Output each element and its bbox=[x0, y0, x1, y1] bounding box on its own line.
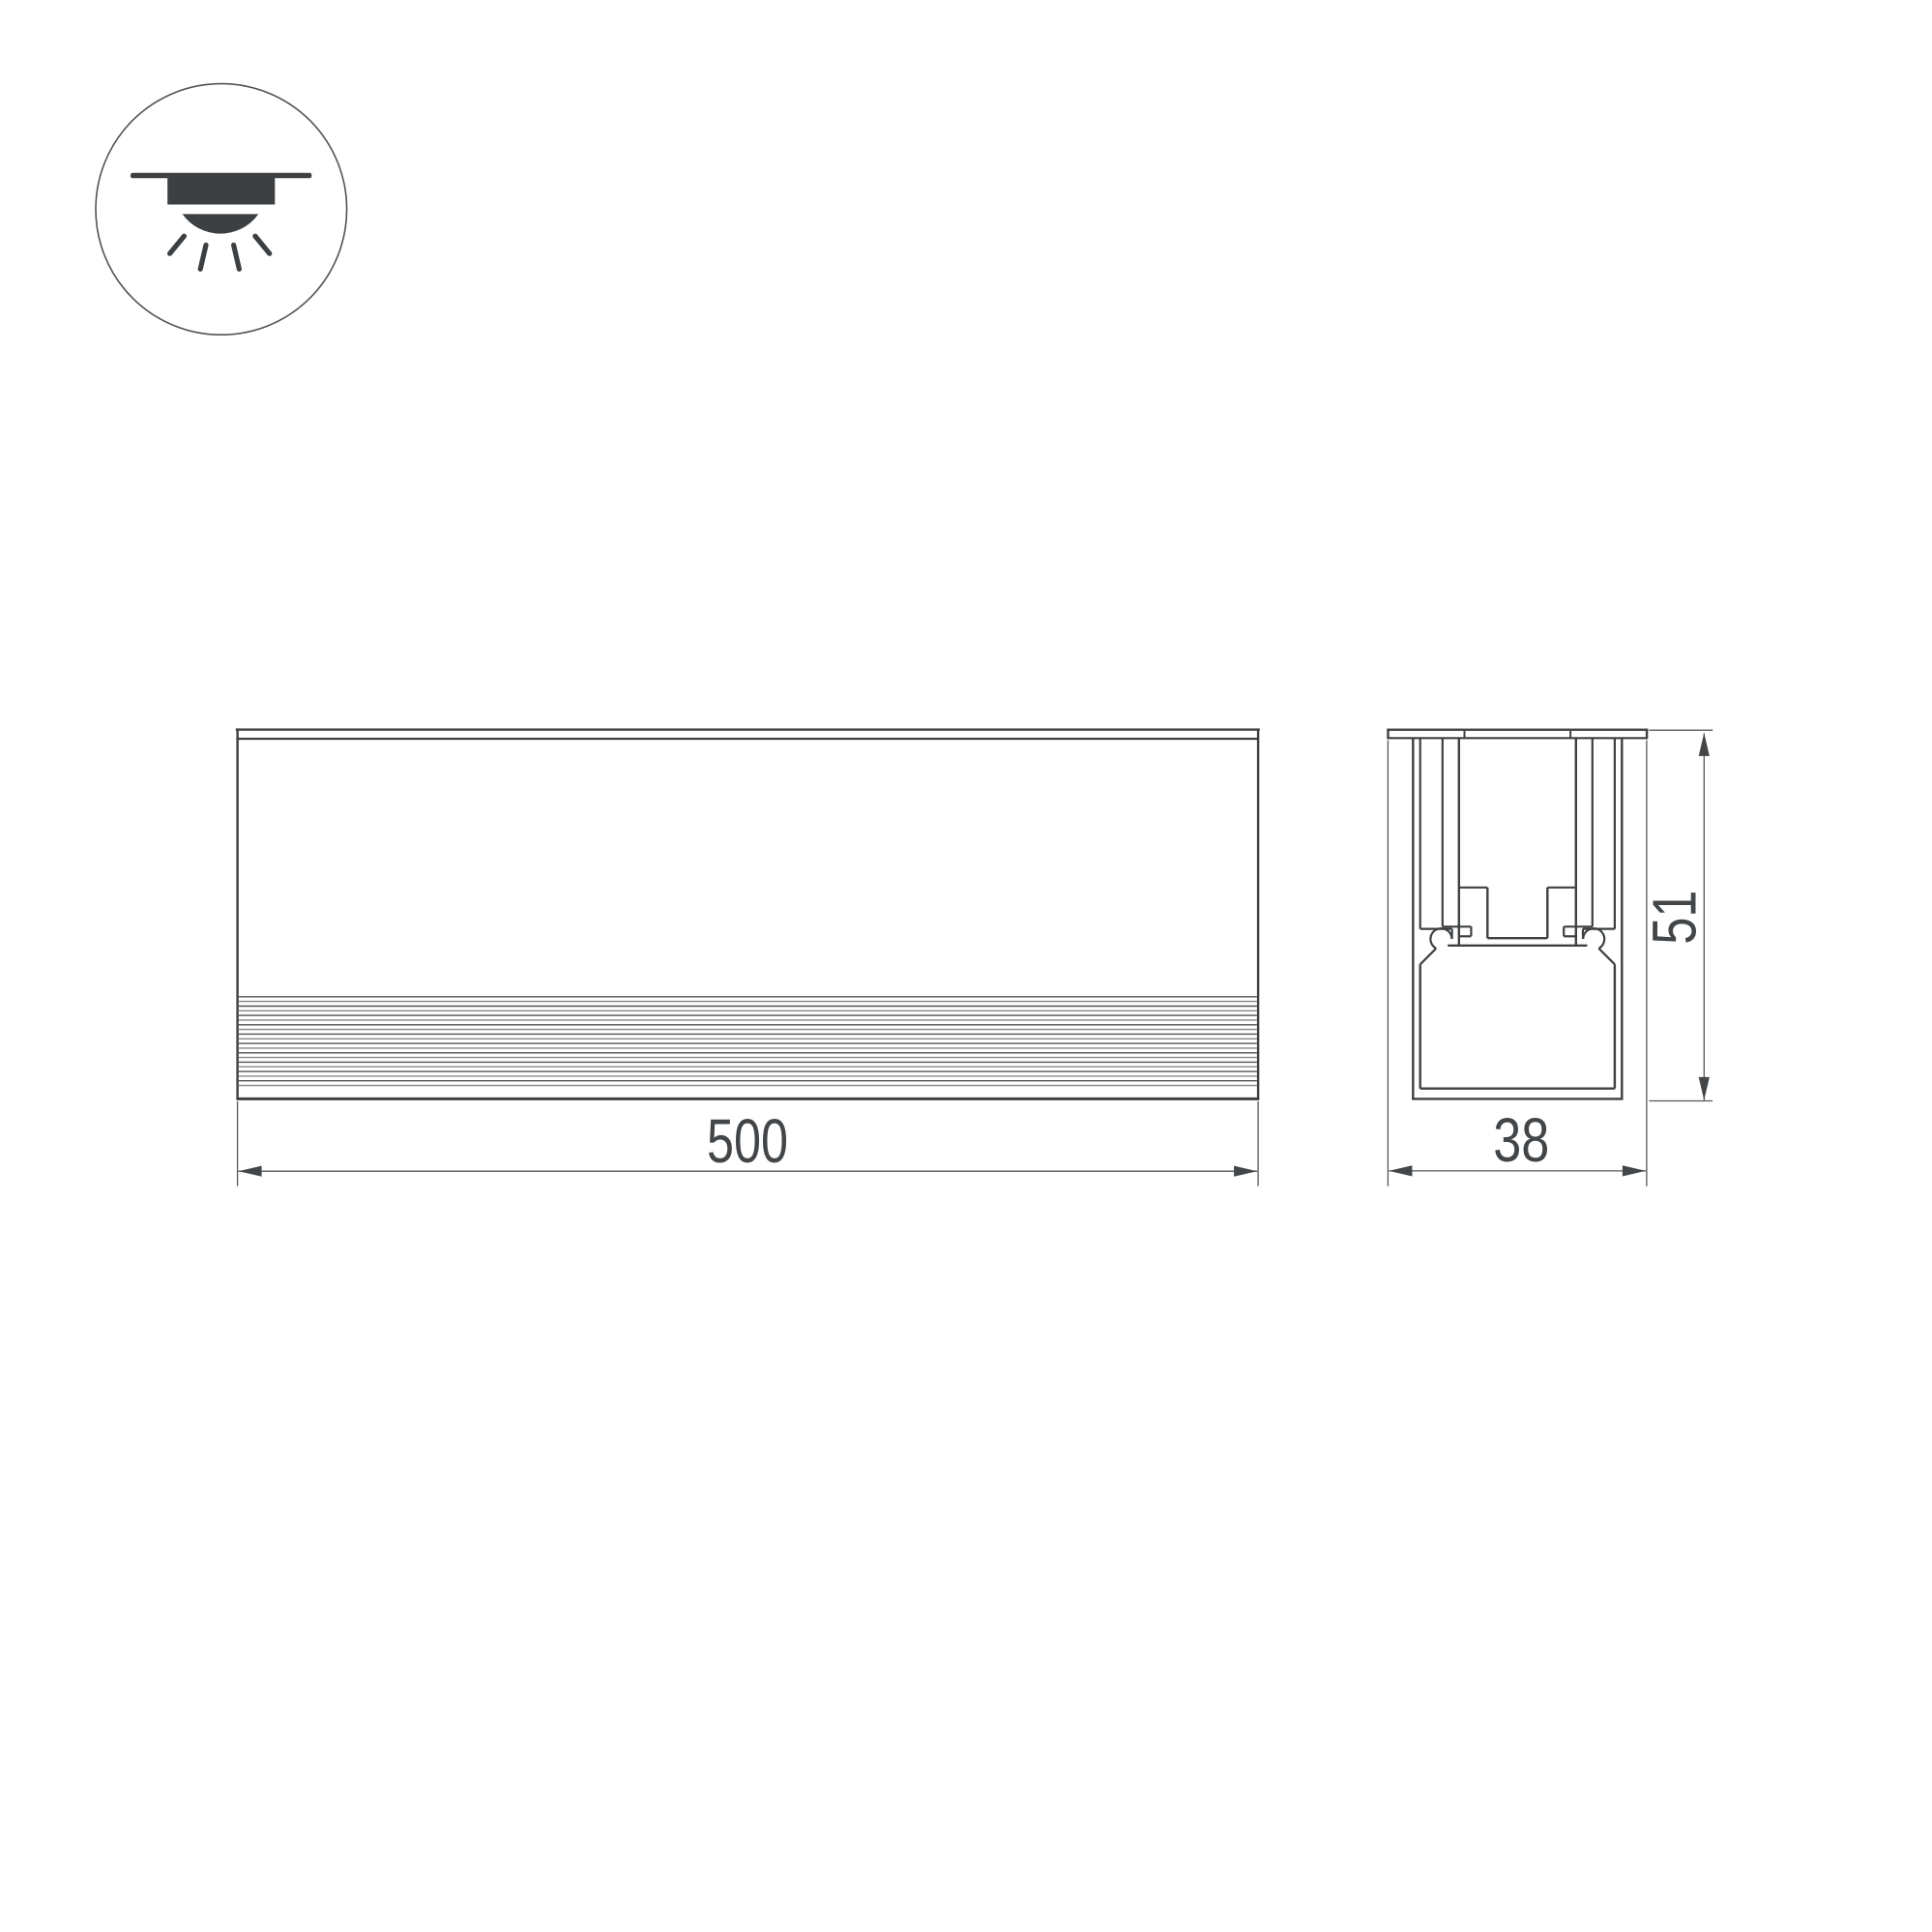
svg-text:500: 500 bbox=[707, 1106, 788, 1176]
svg-text:38: 38 bbox=[1493, 1105, 1549, 1175]
svg-text:51: 51 bbox=[1640, 891, 1710, 945]
